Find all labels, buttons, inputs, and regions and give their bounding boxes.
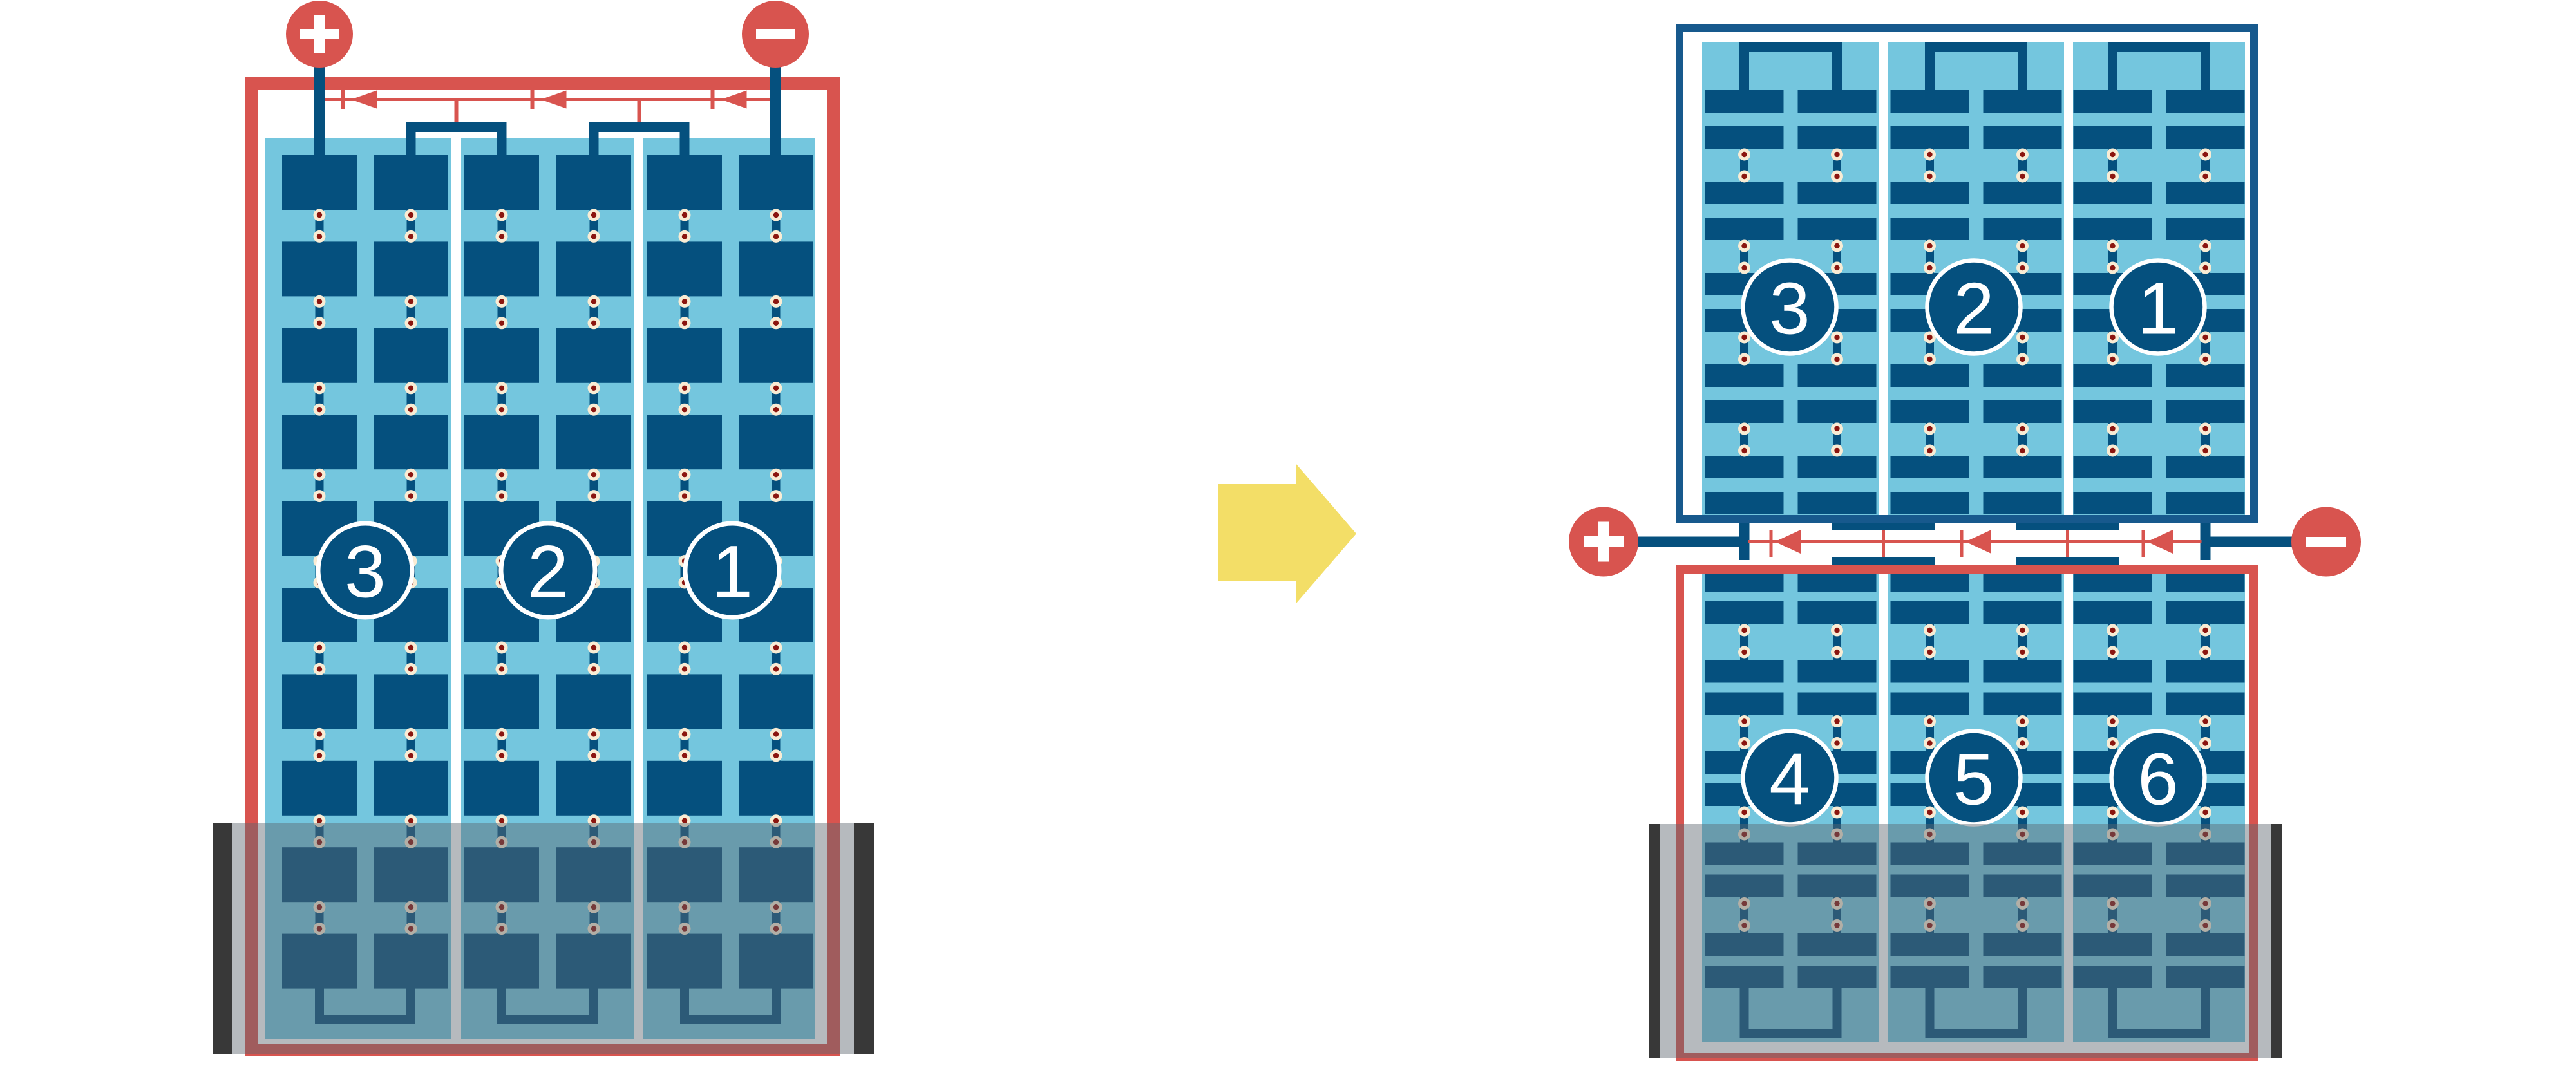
svg-text:1: 1 — [2137, 268, 2178, 350]
svg-text:2: 2 — [1953, 268, 1994, 350]
svg-text:5: 5 — [1953, 739, 1994, 821]
svg-text:4: 4 — [1769, 739, 1810, 821]
svg-text:3: 3 — [1769, 268, 1810, 350]
svg-text:3: 3 — [345, 531, 386, 614]
svg-text:2: 2 — [527, 531, 569, 614]
svg-text:6: 6 — [2137, 739, 2178, 821]
svg-text:1: 1 — [712, 531, 753, 614]
